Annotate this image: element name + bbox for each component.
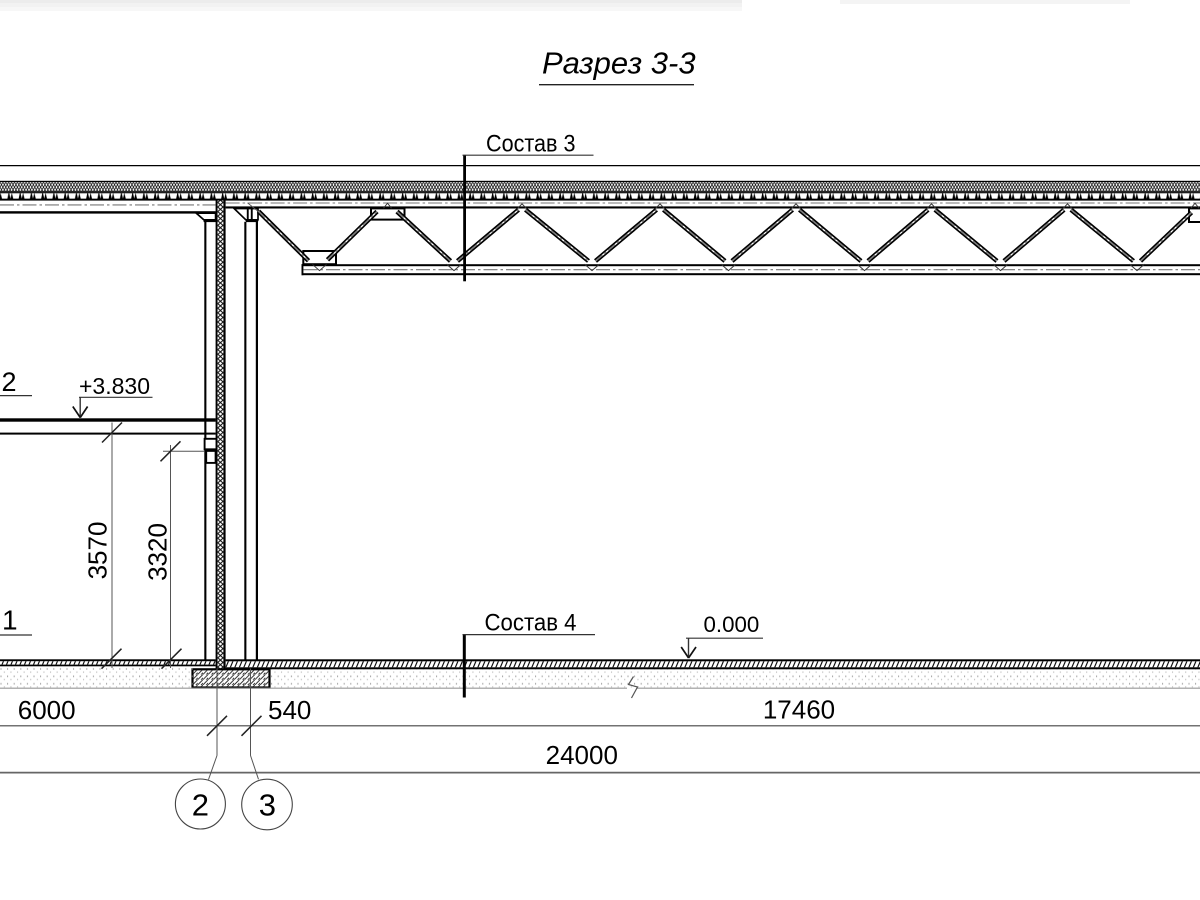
svg-text:6000: 6000 xyxy=(18,695,76,725)
svg-text:0.000: 0.000 xyxy=(704,612,760,637)
svg-text:Состав 3: Состав 3 xyxy=(486,131,576,158)
svg-text:Состав 4: Состав 4 xyxy=(485,610,577,637)
svg-text:3320: 3320 xyxy=(143,523,173,581)
svg-text:24000: 24000 xyxy=(546,740,618,770)
svg-text:2: 2 xyxy=(2,367,17,397)
svg-text:3570: 3570 xyxy=(83,522,113,580)
svg-text:3: 3 xyxy=(259,788,276,823)
svg-text:Разрез 3-3: Разрез 3-3 xyxy=(542,46,696,81)
svg-text:1: 1 xyxy=(2,605,18,636)
svg-text:17460: 17460 xyxy=(763,695,835,725)
svg-text:+3.830: +3.830 xyxy=(79,373,150,399)
svg-text:2: 2 xyxy=(192,787,209,822)
svg-text:540: 540 xyxy=(268,695,311,725)
